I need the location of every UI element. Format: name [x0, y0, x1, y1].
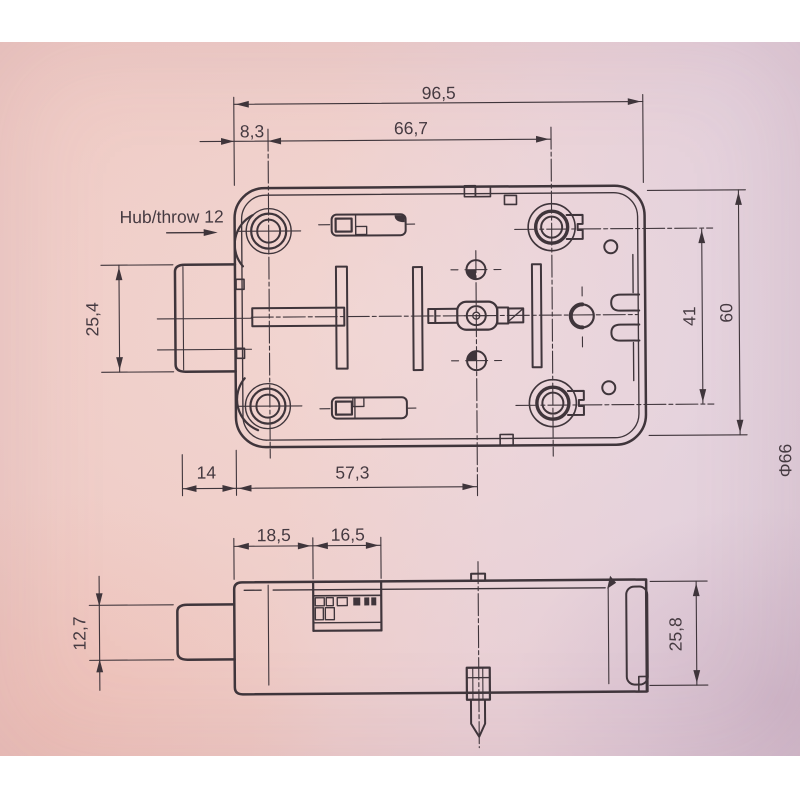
dimension-edge-to-block: 18,5 16,5: [234, 524, 381, 579]
spindle-assembly: [428, 301, 523, 330]
side-bolt: [177, 604, 234, 659]
side-pin-screw: [466, 562, 490, 748]
top-view: 96,5 8,3 66,7 41 60 Hub/throw 12: [81, 81, 748, 499]
dim-14: 14: [197, 462, 217, 482]
screw-hole-bottom-right: [529, 379, 584, 426]
lever-slots: [336, 264, 542, 370]
dim-phi-66: Φ66: [775, 444, 795, 478]
dim-60: 60: [716, 303, 736, 323]
dim-57-3: 57,3: [335, 462, 369, 482]
dim-12-7: 12,7: [69, 616, 89, 650]
dimension-bolt-thickness: 12,7: [69, 576, 174, 691]
slotted-plate-top: [319, 214, 415, 236]
throw-annotation: Hub/throw 12: [120, 206, 224, 236]
dimension-case-depth: 25,8: [649, 581, 708, 685]
dim-16-5: 16,5: [331, 524, 365, 544]
dim-18-5: 18,5: [257, 525, 291, 545]
side-view: 18,5 16,5 12,7 25,8 Φ66: [68, 444, 797, 751]
relock-post: [570, 240, 640, 394]
label-hub-throw: Hub/throw 12: [120, 206, 224, 227]
dim-41: 41: [679, 306, 699, 326]
bolt-top-view: [157, 264, 345, 372]
dim-25-4: 25,4: [82, 302, 102, 336]
dim-96-5: 96,5: [422, 83, 456, 103]
dimension-hole-span-vertical: 41: [679, 229, 707, 403]
technical-drawing: 96,5 8,3 66,7 41 60 Hub/throw 12: [0, 0, 800, 800]
dimension-edge-to-hole: 8,3 66,7: [200, 117, 551, 145]
dim-25-8: 25,8: [665, 617, 685, 651]
screw-hole-top-right: [528, 203, 583, 250]
slotted-plate-bottom: [320, 397, 416, 419]
diameter-annotation: Φ66: [775, 444, 795, 478]
dim-66-7: 66,7: [394, 118, 428, 138]
dim-8-3: 8,3: [240, 121, 264, 141]
dimension-bottom-chain: 14 57,3: [182, 449, 477, 496]
side-body: [234, 572, 648, 694]
dimension-total-width: 96,5: [234, 82, 644, 186]
